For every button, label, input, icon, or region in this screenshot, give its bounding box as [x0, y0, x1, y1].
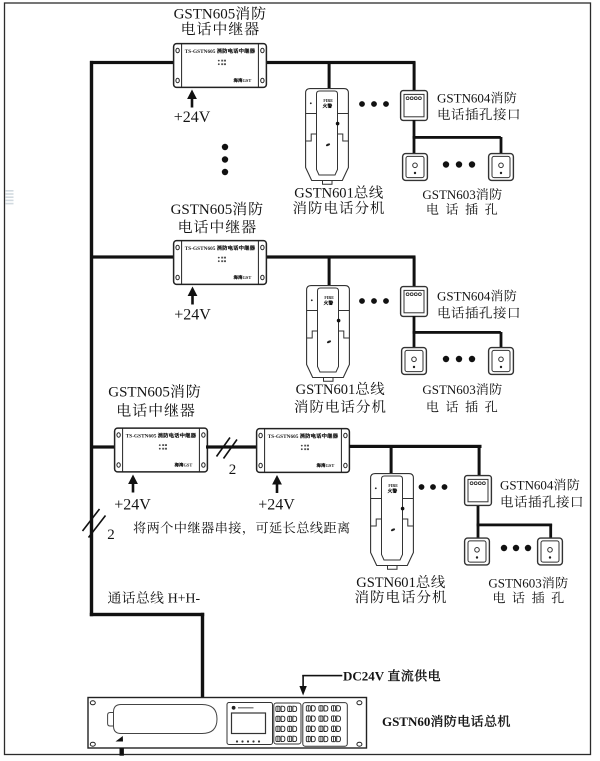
svg-text:GSTN603: GSTN603 [422, 382, 475, 397]
svg-text:+24V: +24V [174, 109, 211, 126]
svg-text:2: 2 [229, 462, 237, 478]
svg-text:GSTN604: GSTN604 [437, 90, 491, 105]
svg-text:GSTN604: GSTN604 [500, 477, 554, 492]
svg-text:GSTN60: GSTN60 [382, 714, 430, 729]
svg-text:H+H-: H+H- [168, 591, 201, 606]
svg-text:GSTN605: GSTN605 [108, 385, 170, 401]
svg-text:+24V: +24V [114, 497, 151, 514]
svg-text:+24V: +24V [174, 307, 211, 324]
svg-text:2: 2 [107, 527, 115, 543]
svg-text:GSTN601: GSTN601 [296, 382, 356, 398]
svg-text:GSTN604: GSTN604 [437, 288, 491, 303]
svg-text:GSTN605: GSTN605 [171, 202, 233, 218]
svg-text:GSTN603: GSTN603 [488, 575, 541, 590]
svg-text:DC24V: DC24V [343, 668, 385, 683]
svg-text:GSTN603: GSTN603 [422, 187, 475, 202]
svg-text:GSTN601: GSTN601 [294, 186, 354, 202]
svg-text:GSTN605: GSTN605 [174, 7, 236, 23]
svg-text:GSTN601: GSTN601 [356, 575, 416, 591]
svg-text:+24V: +24V [258, 497, 295, 514]
